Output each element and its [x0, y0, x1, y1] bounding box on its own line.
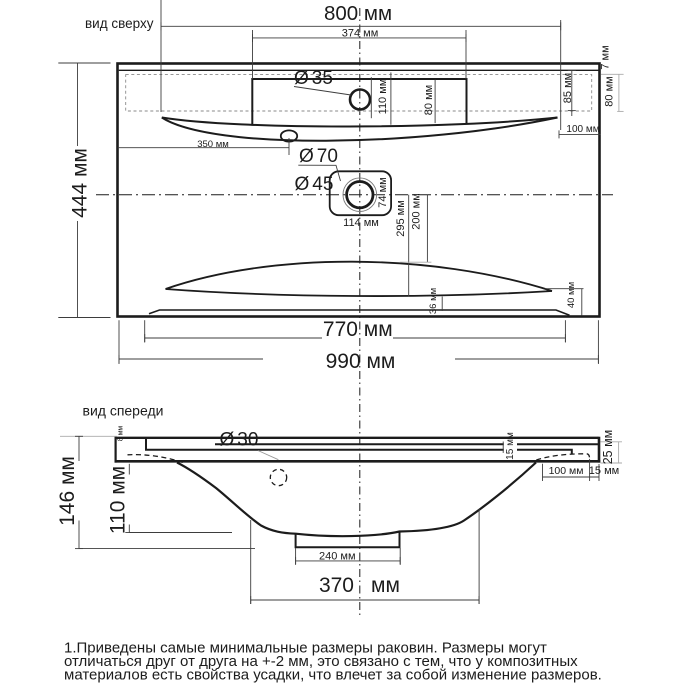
svg-text:вид спереди: вид спереди — [83, 403, 164, 419]
svg-text:15 мм: 15 мм — [505, 432, 516, 460]
svg-text:мм: мм — [371, 574, 400, 597]
svg-text:240 мм: 240 мм — [319, 551, 356, 563]
svg-text:8 мм: 8 мм — [118, 426, 125, 442]
svg-text:800 мм: 800 мм — [324, 2, 392, 25]
svg-text:295 мм: 295 мм — [395, 200, 407, 237]
svg-text:114 мм: 114 мм — [343, 217, 379, 229]
svg-text:85 мм: 85 мм — [562, 73, 574, 103]
svg-text:370: 370 — [319, 574, 354, 597]
svg-text:25 мм: 25 мм — [601, 430, 615, 465]
svg-text:100 мм: 100 мм — [566, 124, 599, 135]
svg-text:Ø45: Ø45 — [295, 174, 334, 195]
svg-text:7 мм: 7 мм — [600, 45, 612, 69]
svg-text:материалов есть свойства усадк: материалов есть свойства усадки, что вле… — [64, 667, 602, 684]
svg-text:146 мм: 146 мм — [56, 456, 79, 526]
svg-text:40 мм: 40 мм — [566, 282, 577, 308]
svg-text:770 мм: 770 мм — [323, 318, 393, 341]
svg-text:вид сверху: вид сверху — [85, 16, 154, 31]
svg-text:100 мм: 100 мм — [549, 465, 584, 477]
svg-text:Ø70: Ø70 — [299, 146, 338, 167]
svg-text:444 мм: 444 мм — [69, 148, 92, 218]
svg-text:110 мм: 110 мм — [377, 79, 389, 115]
svg-text:Ø30: Ø30 — [220, 430, 259, 451]
svg-text:36 мм: 36 мм — [428, 288, 439, 314]
svg-text:80 мм: 80 мм — [423, 85, 435, 115]
svg-text:350 мм: 350 мм — [197, 139, 229, 150]
svg-text:200 мм: 200 мм — [411, 193, 423, 230]
svg-text:74 мм: 74 мм — [377, 177, 389, 207]
svg-text:374 мм: 374 мм — [342, 28, 379, 40]
svg-text:110 мм: 110 мм — [107, 466, 130, 534]
svg-text:990 мм: 990 мм — [326, 350, 396, 373]
svg-text:15 мм: 15 мм — [589, 465, 619, 477]
svg-text:80 мм: 80 мм — [604, 76, 616, 106]
svg-text:Ø35: Ø35 — [294, 68, 333, 89]
